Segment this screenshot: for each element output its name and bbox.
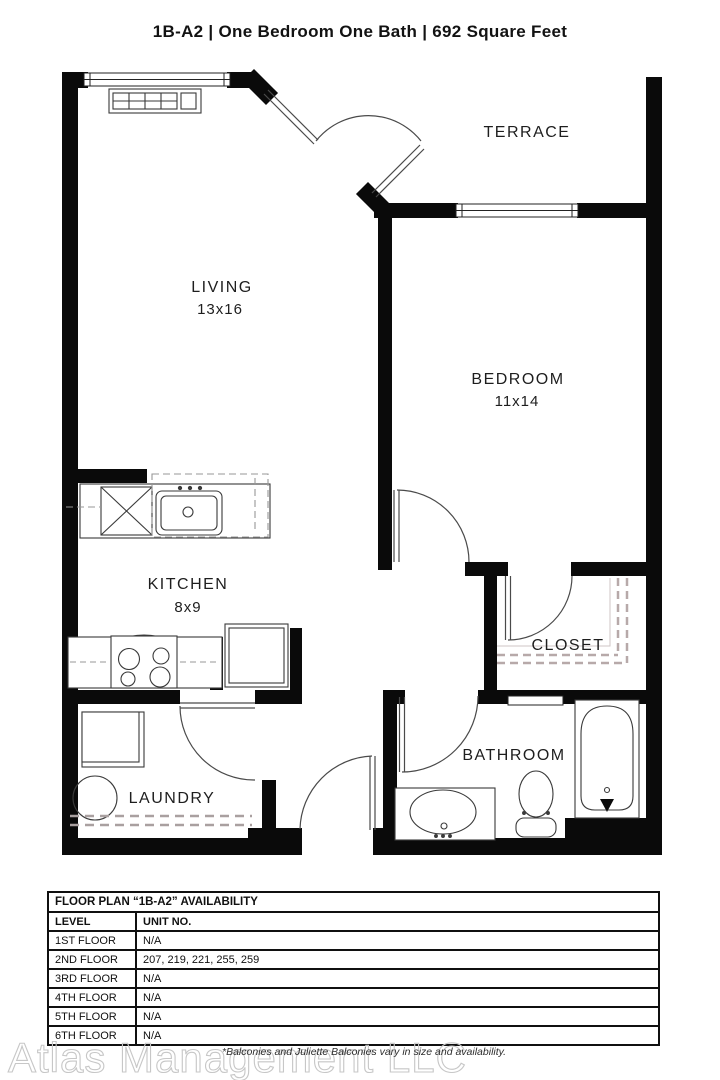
units-cell: N/A (136, 1007, 659, 1026)
col-header-unit-no: UNIT NO. (136, 912, 659, 931)
bedroom-window (456, 204, 578, 217)
level-cell: 4TH FLOOR (48, 988, 136, 1007)
units-cell: N/A (136, 931, 659, 950)
laundry-door (180, 703, 255, 780)
table-row: 4TH FLOOR N/A (48, 988, 659, 1007)
water-heater (73, 776, 117, 820)
room-label-laundry: LAUNDRY (129, 790, 216, 807)
closet-door (506, 576, 573, 640)
vanity (395, 788, 495, 840)
room-label-terrace: TERRACE (484, 124, 571, 141)
room-dims-kitchen: 8x9 (174, 599, 201, 616)
bath-niche (508, 696, 563, 705)
room-dims-living: 13x16 (197, 301, 243, 318)
room-label-closet: CLOSET (531, 637, 604, 654)
floor-plan-sheet: 1B-A2 | One Bedroom One Bath | 692 Squar… (0, 0, 720, 1080)
level-cell: 1ST FLOOR (48, 931, 136, 950)
kitchen-sink (156, 486, 222, 535)
table-row: 5TH FLOOR N/A (48, 1007, 659, 1026)
bedroom-door (394, 490, 469, 562)
terrace-door (264, 90, 424, 197)
units-cell: N/A (136, 969, 659, 988)
col-header-level: LEVEL (48, 912, 136, 931)
living-window (84, 73, 230, 86)
floor-plan-drawing: TERRACE LIVING 13x16 BEDROOM 11x14 KITCH… (0, 0, 720, 880)
room-label-kitchen: KITCHEN (148, 576, 229, 593)
units-cell: N/A (136, 988, 659, 1007)
room-label-bathroom: BATHROOM (462, 747, 565, 764)
washer (82, 712, 144, 767)
hvac-unit (109, 89, 201, 113)
laundry-dashes (70, 816, 252, 825)
availability-table-title: FLOOR PLAN “1B-A2” AVAILABILITY (48, 892, 659, 912)
level-cell: 3RD FLOOR (48, 969, 136, 988)
availability-table: FLOOR PLAN “1B-A2” AVAILABILITY LEVEL UN… (47, 891, 660, 1046)
fixtures (66, 89, 639, 840)
windows (84, 73, 578, 705)
table-row: 3RD FLOOR N/A (48, 969, 659, 988)
room-label-living: LIVING (191, 279, 252, 296)
level-cell: 2ND FLOOR (48, 950, 136, 969)
level-cell: 5TH FLOOR (48, 1007, 136, 1026)
units-cell: 207, 219, 221, 255, 259 (136, 950, 659, 969)
table-row: 2ND FLOOR 207, 219, 221, 255, 259 (48, 950, 659, 969)
stove (68, 635, 222, 688)
bathtub (575, 700, 639, 818)
room-label-bedroom: BEDROOM (471, 371, 564, 388)
room-dims-bedroom: 11x14 (495, 393, 540, 410)
diagonal-walls (254, 81, 380, 206)
toilet (516, 771, 556, 837)
entry-door (300, 756, 375, 830)
balcony-disclaimer: *Balconies and Juliette Balconies vary i… (222, 1046, 506, 1058)
table-row: 1ST FLOOR N/A (48, 931, 659, 950)
refrigerator (225, 624, 288, 687)
